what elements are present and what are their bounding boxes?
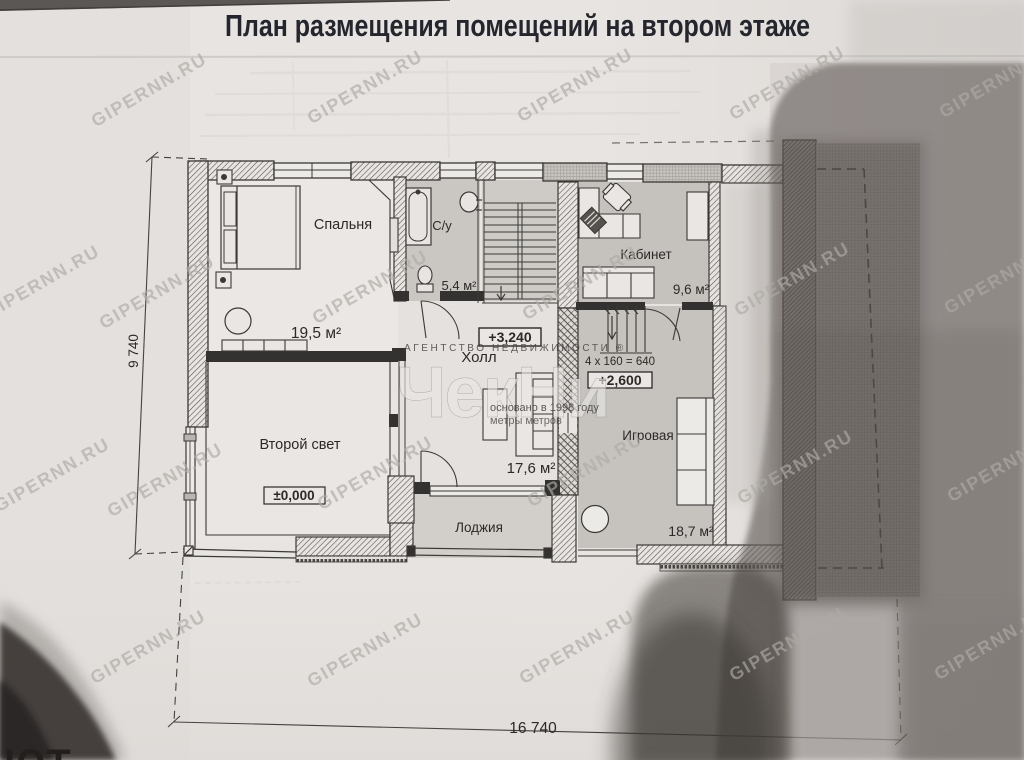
svg-text:основано в 1998 году: основано в 1998 году (490, 402, 599, 414)
svg-text:Спальня: Спальня (314, 217, 372, 233)
svg-text:Второй свет: Второй свет (259, 437, 340, 453)
svg-text:±0,000: ±0,000 (273, 488, 314, 503)
svg-text:18,7 м²: 18,7 м² (668, 523, 714, 539)
svg-text:План размещения помещений на в: План размещения помещений на втором этаж… (225, 8, 810, 43)
svg-text:С/у: С/у (432, 218, 452, 233)
svg-text:ЮТ: ЮТ (4, 742, 73, 760)
svg-text:5,4 м²: 5,4 м² (442, 278, 478, 293)
svg-text:9 740: 9 740 (126, 334, 141, 368)
svg-text:метры метров: метры метров (490, 415, 562, 427)
svg-text:19,5 м²: 19,5 м² (291, 325, 341, 342)
svg-text:9,6 м²: 9,6 м² (673, 282, 710, 297)
svg-text:Лоджия: Лоджия (455, 520, 503, 535)
svg-text:16 740: 16 740 (509, 720, 557, 737)
svg-text:17,6 м²: 17,6 м² (507, 460, 556, 477)
